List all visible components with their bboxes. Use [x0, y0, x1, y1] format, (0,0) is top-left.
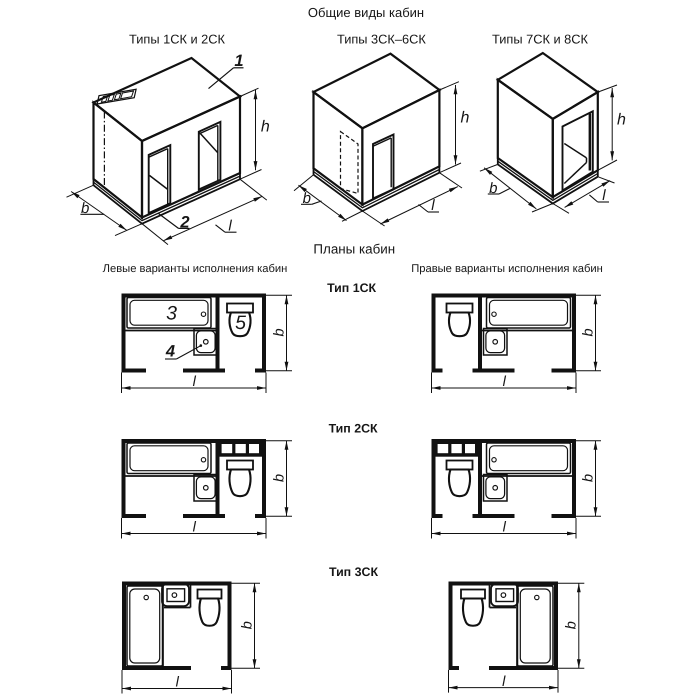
- svg-text:Общие виды кабин: Общие виды кабин: [308, 5, 424, 20]
- svg-text:b: b: [81, 200, 89, 217]
- svg-text:h: h: [617, 111, 626, 128]
- svg-text:h: h: [461, 110, 470, 127]
- svg-text:Планы кабин: Планы кабин: [313, 241, 395, 256]
- svg-text:5: 5: [235, 312, 246, 334]
- svg-text:b: b: [272, 328, 288, 336]
- svg-text:Тип 3СК: Тип 3СК: [329, 565, 378, 579]
- svg-text:Типы 3СК–6СК: Типы 3СК–6СК: [337, 31, 426, 46]
- svg-text:b: b: [581, 328, 597, 336]
- svg-text:b: b: [581, 474, 597, 482]
- svg-text:3: 3: [166, 303, 177, 325]
- svg-text:b: b: [564, 621, 580, 629]
- svg-text:Тип 2СК: Тип 2СК: [329, 422, 378, 436]
- svg-text:b: b: [272, 474, 288, 482]
- svg-text:b: b: [303, 190, 311, 207]
- svg-text:Правые варианты исполнения каб: Правые варианты исполнения кабин: [411, 263, 603, 275]
- svg-text:b: b: [489, 180, 497, 197]
- svg-text:b: b: [239, 621, 255, 629]
- svg-text:4: 4: [165, 343, 175, 361]
- svg-text:h: h: [261, 118, 270, 135]
- svg-text:Левые варианты исполнения каби: Левые варианты исполнения кабин: [103, 263, 288, 275]
- svg-text:Тип 1СК: Тип 1СК: [327, 281, 376, 295]
- svg-text:Типы 7СК и 8СК: Типы 7СК и 8СК: [492, 31, 589, 46]
- svg-text:Типы 1СК и 2СК: Типы 1СК и 2СК: [129, 31, 226, 46]
